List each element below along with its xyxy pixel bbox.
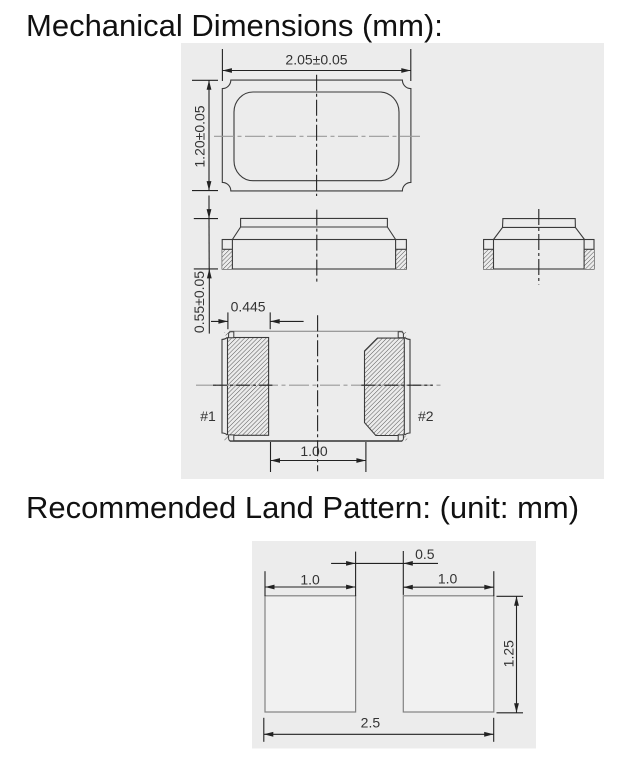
svg-text:1.0: 1.0 bbox=[438, 571, 458, 587]
svg-text:0.445: 0.445 bbox=[231, 298, 266, 314]
svg-text:1.0: 1.0 bbox=[300, 571, 320, 587]
svg-text:1.25: 1.25 bbox=[500, 640, 516, 667]
svg-text:2.5: 2.5 bbox=[361, 714, 381, 730]
svg-text:1.00: 1.00 bbox=[300, 443, 327, 459]
svg-text:0.5: 0.5 bbox=[415, 546, 435, 562]
svg-text:1.20±0.05: 1.20±0.05 bbox=[192, 105, 208, 167]
svg-text:2.05±0.05: 2.05±0.05 bbox=[285, 52, 347, 68]
svg-text:#2: #2 bbox=[418, 408, 434, 424]
svg-text:0.55±0.05: 0.55±0.05 bbox=[191, 271, 207, 333]
svg-text:#1: #1 bbox=[200, 408, 216, 424]
